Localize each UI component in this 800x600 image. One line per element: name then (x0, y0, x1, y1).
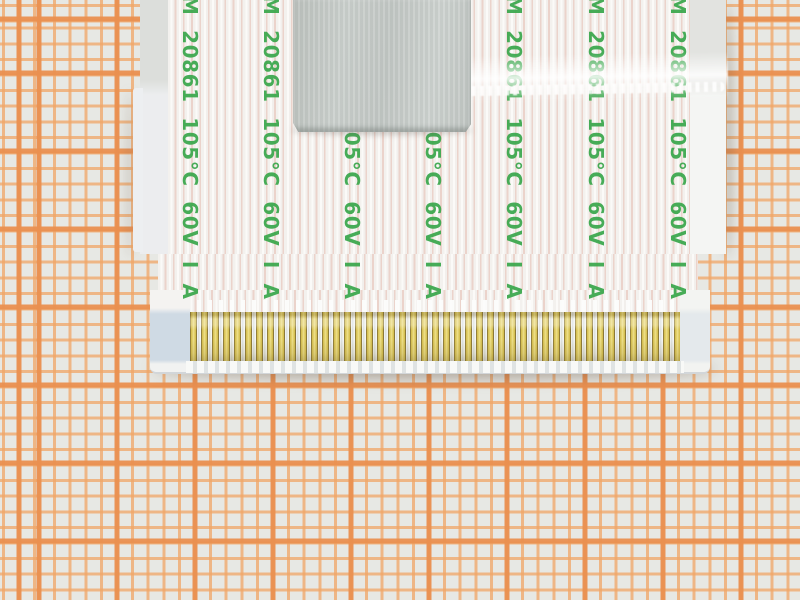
insulation-comb-below-contacts (186, 361, 684, 373)
marking-column-2: M 20861 105°C 60V I A M (258, 0, 284, 313)
silver-foil-tape (293, 0, 471, 132)
marking-column-5: M 20861 105°C 60V I A M (501, 0, 527, 313)
gold-contacts-strip (190, 312, 680, 362)
photo-ffc-cable-on-graph-paper: M 20861 105°C 60V I A M M 20861 105°C 60… (0, 0, 800, 600)
marking-column-6: M 20861 105°C 60V I A M (583, 0, 609, 313)
marking-column-1: M 20861 105°C 60V I A M (177, 0, 203, 313)
marking-column-7: M 20861 105°C 60V I A M (665, 0, 691, 313)
